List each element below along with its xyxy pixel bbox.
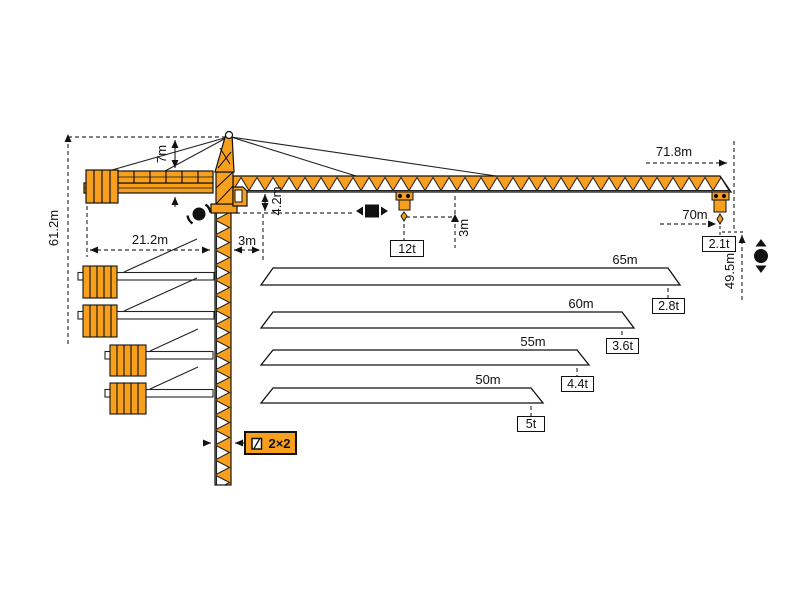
max-capacity-box: 12t xyxy=(390,240,424,257)
option-tie xyxy=(150,367,198,389)
option-tie xyxy=(150,329,198,351)
tip-load-box-50m: 5t xyxy=(517,416,545,432)
jib-lattice xyxy=(233,176,731,192)
total-height-label: 61.2m xyxy=(47,198,61,258)
jib-bar-length-label-50m: 50m xyxy=(463,373,513,387)
trolley-wheel xyxy=(714,194,717,197)
slewing-dot xyxy=(193,208,206,221)
jib-tie-outer xyxy=(231,137,496,176)
tip-load-box: 2.1t xyxy=(702,236,736,252)
counterjib-radius-label: 21.2m xyxy=(110,233,190,247)
jib-tie-inner xyxy=(231,137,356,176)
tip-load-box-55m: 4.4t xyxy=(561,376,594,392)
trolley-hook-mid xyxy=(396,192,413,221)
hook xyxy=(401,212,407,221)
trolley-square xyxy=(365,205,379,218)
trolley-wheel xyxy=(398,194,401,197)
hoist-icon xyxy=(754,239,768,273)
counter-jib xyxy=(84,170,213,203)
down-arrow xyxy=(756,266,767,274)
up-arrow xyxy=(756,239,767,247)
cab-window xyxy=(235,190,242,202)
max-hook-radius-label: 70m xyxy=(665,208,725,222)
slewing-arc xyxy=(188,216,193,224)
jib xyxy=(233,176,731,192)
mast-section-icon xyxy=(250,436,264,451)
option-tie xyxy=(124,278,197,311)
trolley-wheel xyxy=(406,194,409,197)
counterweight-option-block xyxy=(83,305,117,337)
jib-section-height-label: 4.2m xyxy=(270,181,284,221)
jib-bar-length-label-65m: 65m xyxy=(600,253,650,267)
counterweight-option-block xyxy=(83,266,117,298)
min-radius-label: 3m xyxy=(227,234,267,248)
counterjib-tie-outer xyxy=(112,137,228,170)
jib-bar-55m xyxy=(261,350,589,365)
tip-load-box-65m: 2.8t xyxy=(652,298,685,314)
max-jib-radius-label: 71.8m xyxy=(634,145,714,159)
counterweight-option-block xyxy=(110,383,146,414)
jib-bar-length-label-55m: 55m xyxy=(508,335,558,349)
hoist-dot xyxy=(754,249,768,263)
jib-bar-65m xyxy=(261,268,680,285)
slewing-arc xyxy=(206,205,211,213)
jib-bar-length-label-60m: 60m xyxy=(556,297,606,311)
trolley-travel-icon xyxy=(356,205,388,218)
left-arrow xyxy=(356,207,363,216)
right-arrow xyxy=(381,207,388,216)
mast-section-label: 2×2 xyxy=(268,436,290,451)
slewing-icon xyxy=(188,205,211,224)
hook-drop-label: 3m xyxy=(457,208,471,248)
counterweight-option-block xyxy=(110,345,146,376)
mast-section-box: 2×2 xyxy=(244,431,297,455)
apex-height-label: 7m xyxy=(155,134,169,174)
trolley-wheel xyxy=(722,194,725,197)
jib-bar-60m xyxy=(261,312,634,328)
hook-block xyxy=(399,200,410,210)
counterweight-options xyxy=(78,239,214,414)
apex-pin xyxy=(226,132,233,139)
crane-dimension-diagram: 61.2m 7m 21.2m 3m 4.2m 3m 71.8m 70m 49.5… xyxy=(0,0,800,600)
jib-bar-50m xyxy=(261,388,543,403)
tip-load-box-60m: 3.6t xyxy=(606,338,639,354)
tie-rods xyxy=(112,137,496,176)
